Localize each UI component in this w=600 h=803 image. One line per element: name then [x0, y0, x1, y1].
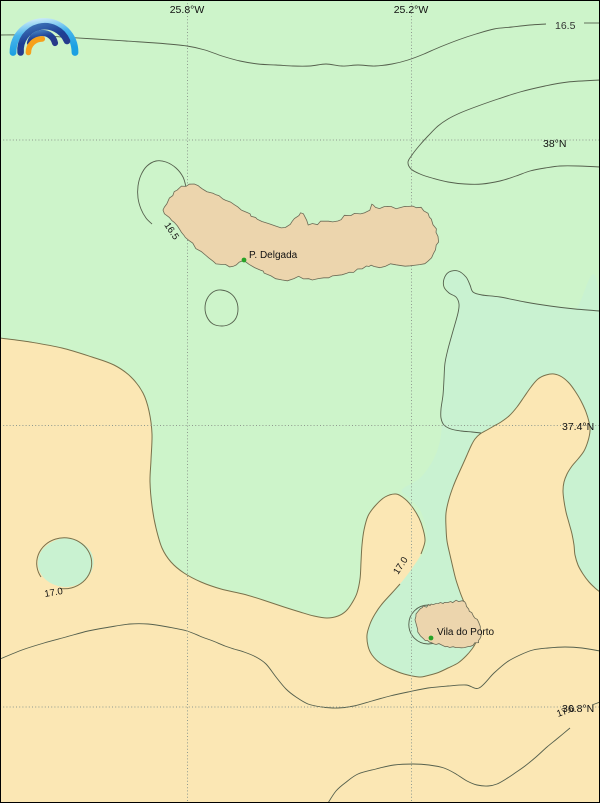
svg-text:P. Delgada: P. Delgada [249, 250, 298, 261]
svg-text:16.5: 16.5 [555, 20, 576, 32]
svg-text:25.8°W: 25.8°W [170, 4, 205, 16]
svg-text:Vila do Porto: Vila do Porto [437, 627, 495, 638]
svg-text:37.4°N: 37.4°N [562, 421, 594, 433]
svg-text:25.2°W: 25.2°W [394, 4, 429, 16]
svg-text:36.8°N: 36.8°N [562, 703, 594, 715]
svg-text:38°N: 38°N [543, 138, 566, 150]
